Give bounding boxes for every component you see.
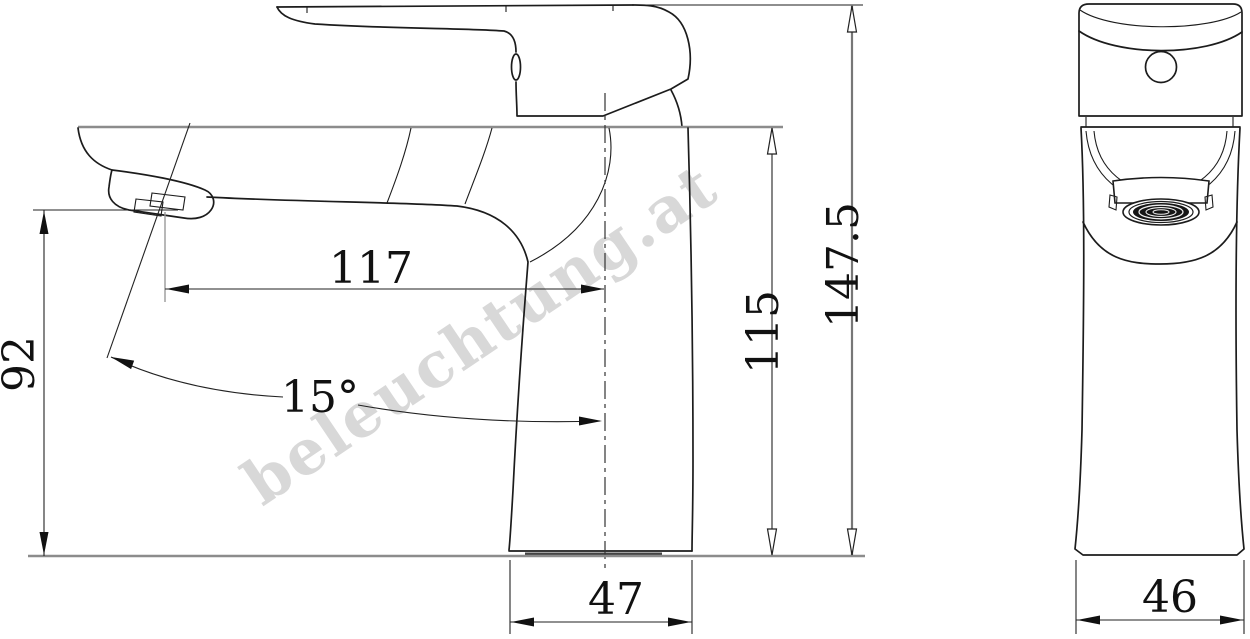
dim-spout-angle-label: 15°	[281, 372, 359, 423]
dimension-spout-height-92: 92	[0, 210, 178, 556]
body-contour-curve-1	[387, 128, 411, 203]
dim-body-height-label: 115	[738, 290, 789, 374]
dimension-base-width-46: 46	[1076, 560, 1244, 634]
handle-indicator-dot	[1146, 52, 1177, 83]
angle-construction-line	[107, 123, 190, 358]
technical-drawing-canvas: beleuchtung.at	[0, 0, 1250, 639]
dim-spout-reach-label: 117	[329, 243, 413, 294]
body-bulge-bottom-curve	[1083, 222, 1237, 264]
lever-handle-side	[277, 5, 690, 127]
faucet-dimension-drawing: beleuchtung.at	[0, 0, 1250, 639]
dimension-base-depth-47: 47	[510, 560, 692, 634]
watermark-text: beleuchtung.at	[230, 149, 730, 519]
aerator-front	[1123, 199, 1199, 225]
body-contour-curve-2	[465, 128, 492, 204]
dimension-body-height-115: 115	[738, 128, 789, 555]
front-view	[1075, 4, 1244, 555]
dim-base-depth-label: 47	[588, 574, 644, 625]
dim-total-height-label: 147.5	[818, 202, 869, 328]
handle-neck-curve	[671, 90, 682, 127]
dimension-total-height-147-5: 147.5	[818, 5, 869, 555]
body-front	[1075, 127, 1244, 555]
lever-handle-front	[1079, 4, 1242, 127]
dim-base-width-label: 46	[1142, 572, 1198, 623]
spout-side	[78, 128, 214, 219]
set-screw	[512, 54, 521, 80]
dim-spout-height-label: 92	[0, 336, 45, 392]
